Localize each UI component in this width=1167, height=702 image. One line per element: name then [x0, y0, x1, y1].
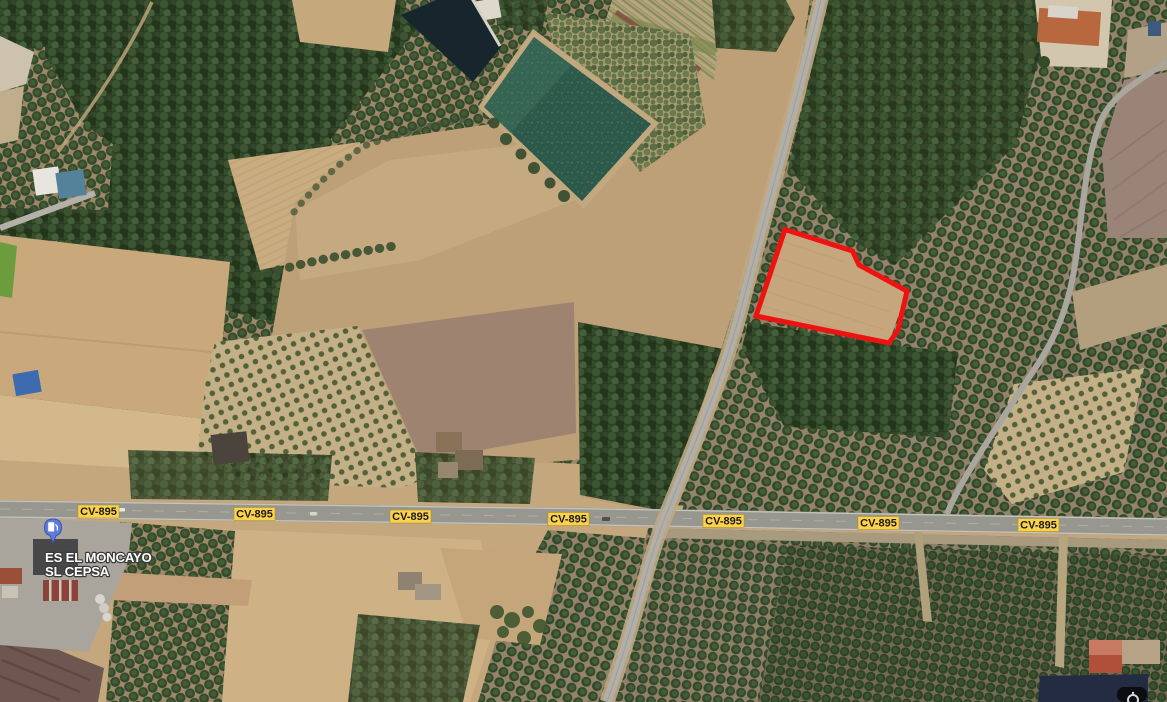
svg-text:CV-895: CV-895 — [705, 516, 742, 528]
svg-text:CV-895: CV-895 — [80, 506, 117, 518]
svg-text:CV-895: CV-895 — [550, 514, 587, 526]
svg-text:CV-895: CV-895 — [236, 509, 273, 521]
svg-text:ES EL MONCAYO: ES EL MONCAYO — [45, 550, 152, 565]
svg-text:CV-895: CV-895 — [1020, 520, 1057, 532]
svg-text:CV-895: CV-895 — [392, 511, 429, 523]
svg-text:SL CEPSA: SL CEPSA — [45, 564, 110, 579]
svg-text:CV-895: CV-895 — [860, 518, 897, 530]
